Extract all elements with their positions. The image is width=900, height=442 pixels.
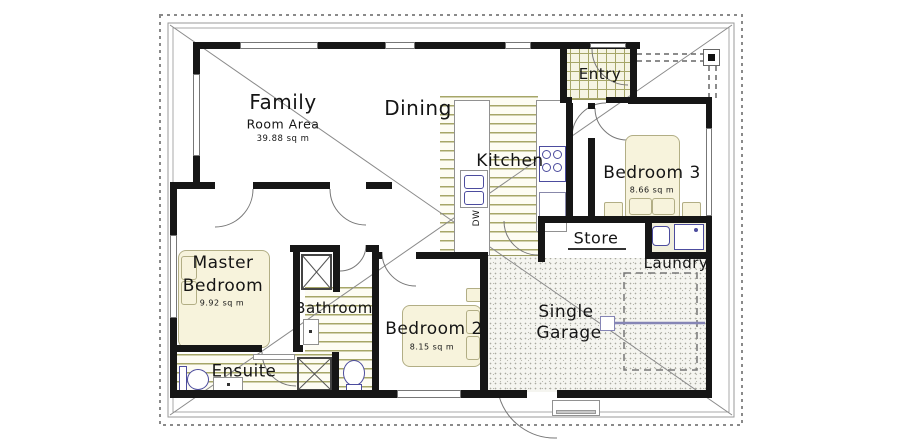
master-door-arc <box>215 189 253 227</box>
bedroom2-door-arc <box>382 252 416 286</box>
stove-burner-4 <box>553 163 562 172</box>
window-top-1 <box>240 42 318 49</box>
bedroom3-door-arc <box>595 108 627 140</box>
kitchen-label: Kitchen <box>476 151 543 171</box>
bedroom2-pillow-2 <box>466 336 480 360</box>
bathroom-door-arc <box>340 245 366 271</box>
washing-machine <box>674 224 704 250</box>
wall-family-master-2 <box>253 182 330 189</box>
master-label-line2: Bedroom <box>183 276 263 296</box>
store-shelf-line <box>568 248 626 250</box>
wall-bedroom3-left-2 <box>588 138 595 216</box>
wall-entry-right <box>630 42 637 103</box>
bedroom3-pillow-1 <box>629 198 652 215</box>
window-bedroom2-bottom <box>397 390 461 398</box>
store-label: Store <box>574 229 619 248</box>
family-label: Family <box>249 90 316 114</box>
garage-dashed-setout <box>624 273 697 370</box>
wall-bedroom3-left-1 <box>588 103 595 109</box>
wall-bottom-2 <box>461 390 527 398</box>
ensuite-vanity-dot <box>227 383 230 386</box>
master-label-line1: Master <box>192 253 253 273</box>
wall-shower-right <box>333 252 340 292</box>
bedroom3-area: 8.66 sq m <box>630 186 674 195</box>
bedroom3-label: Bedroom 3 <box>603 163 701 183</box>
wall-entry-bottom-2 <box>606 97 636 103</box>
wall-bottom-1 <box>170 390 397 398</box>
ensuite-shelf <box>253 354 295 360</box>
ensuite-label: Ensuite <box>212 362 277 381</box>
window-master-left <box>170 235 177 318</box>
wall-ensuite-bath-div <box>332 352 339 398</box>
entry-step-tread <box>556 410 596 414</box>
bedroom2-label: Bedroom 2 <box>385 319 483 339</box>
wall-ensuite-top-2 <box>296 345 303 352</box>
porch-post-core <box>708 54 715 61</box>
wall-mid-horizontal <box>538 216 712 223</box>
wall-bedroom3-top <box>628 97 712 104</box>
master-area: 9.92 sq m <box>200 299 244 308</box>
linework-overlay <box>0 0 900 442</box>
hall-door-arc <box>330 189 366 225</box>
dishwasher-label: DW <box>472 210 482 227</box>
window-top-2 <box>385 42 415 49</box>
wall-bottom-3 <box>557 390 712 398</box>
wall-bedroom2-top-1 <box>372 252 382 259</box>
stove-burner-2 <box>553 150 562 159</box>
sink-bowl-2 <box>464 191 484 205</box>
bathroom-vanity-dot <box>309 330 312 333</box>
wall-ensuite-top-1 <box>170 345 262 352</box>
laundry-label: Laundry <box>644 254 709 272</box>
bedroom2-area: 8.15 sq m <box>410 343 454 352</box>
window-top-3 <box>505 42 531 49</box>
bathroom-toilet-bowl <box>343 360 365 386</box>
family-sublabel: Room Area <box>247 117 320 132</box>
window-front-door <box>590 43 626 48</box>
window-left-upper <box>193 74 200 156</box>
ensuite-shower <box>297 357 332 391</box>
dining-label: Dining <box>384 96 452 120</box>
sink-bowl-1 <box>464 175 484 189</box>
wall-bath-top-1 <box>290 245 340 252</box>
wall-family-master-3 <box>366 182 392 189</box>
family-area: 39.88 sq m <box>257 134 310 144</box>
wall-bedroom2-top-2 <box>416 252 488 259</box>
bedroom3-pillow-2 <box>652 198 675 215</box>
wall-store-laundry-div <box>645 216 652 256</box>
wall-kitchen-right <box>566 103 573 216</box>
washing-machine-dot <box>694 228 698 232</box>
ensuite-toilet-bowl <box>187 369 209 390</box>
wall-entry-left <box>560 42 567 103</box>
laundry-tub <box>652 226 670 246</box>
garage-label-line2: Garage <box>536 323 601 343</box>
ensuite-toilet-tank <box>179 366 187 392</box>
store-door-arc <box>504 221 538 255</box>
floor-plan-canvas: DW Family Room Area 39.88 sq m Dining Ki… <box>0 0 900 442</box>
wall-bath-right <box>372 245 379 398</box>
entry-label: Entry <box>579 65 621 83</box>
garage-beam-block <box>600 316 615 331</box>
garage-label-line1: Single <box>538 302 593 322</box>
window-bedroom3-right <box>706 128 712 216</box>
wall-store-left <box>538 216 545 262</box>
bathroom-label: Bathroom <box>295 299 373 317</box>
bathroom-shower <box>301 254 332 290</box>
